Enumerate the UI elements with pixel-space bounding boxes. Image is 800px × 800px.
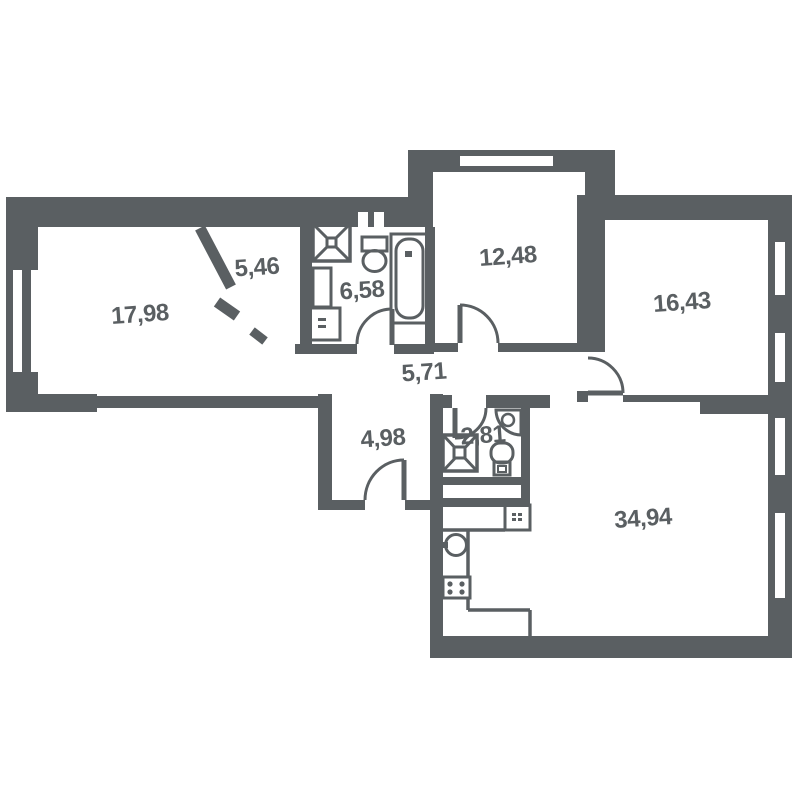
window-right-2 <box>775 333 785 382</box>
wall-segment <box>498 343 577 352</box>
wall-segment <box>437 395 452 408</box>
wall-segment <box>394 344 434 354</box>
room-area-label-living-kitchen: 34,94 <box>613 503 672 535</box>
window-line <box>6 268 13 378</box>
stove-icon <box>443 577 470 598</box>
floor-plan: 17,98 5,46 6,58 12,48 16,43 5,71 4,98 2,… <box>0 0 800 800</box>
wall-segment <box>97 396 330 408</box>
room-area-label-wc: 2,81 <box>460 420 507 451</box>
room-area-label-wardrobe: 5,46 <box>234 252 281 283</box>
duct-notch <box>358 212 368 227</box>
room-area-label-bathroom: 6,58 <box>339 275 386 306</box>
wall-segment <box>430 636 792 658</box>
door-swing-arc <box>357 309 392 344</box>
washing-machine-icon <box>310 308 340 340</box>
window-right-4 <box>775 513 785 598</box>
wall-segment <box>585 150 615 220</box>
walls <box>6 150 792 658</box>
wall-segment <box>318 394 332 510</box>
wall-segment <box>577 391 588 402</box>
wall-segment <box>437 477 530 485</box>
room-area-label-bedroom-top: 12,48 <box>478 241 537 273</box>
wall-segment <box>605 195 792 220</box>
door-swing-arc <box>460 305 498 343</box>
door-swing-arc <box>588 358 623 393</box>
shower-cabin-icon <box>313 224 350 261</box>
wall-segment <box>486 395 550 408</box>
wall-segment <box>318 500 365 510</box>
window-right-1 <box>775 242 785 295</box>
window-top-bay <box>460 156 553 166</box>
wall-segment <box>405 500 432 510</box>
room-area-label-hallway: 5,71 <box>401 357 448 388</box>
wall-segment <box>623 395 700 402</box>
bathtub-icon <box>391 234 428 323</box>
wall-segment <box>430 394 443 658</box>
entrance-door <box>365 460 404 500</box>
window-right-3 <box>775 418 785 475</box>
floor-plan-drawing <box>0 0 800 800</box>
wall-segment <box>6 394 97 412</box>
kitchen-sink-icon <box>441 535 467 556</box>
duct-notch <box>374 212 384 227</box>
wall-segment <box>295 344 357 354</box>
kitchen-counter-outline <box>443 530 530 636</box>
window-line <box>22 268 31 378</box>
bedroom-top-door <box>460 305 498 343</box>
room-area-label-entry-hall: 4,98 <box>360 423 407 454</box>
wall-segment <box>700 395 770 414</box>
wall-segment <box>252 331 265 341</box>
bathroom-door <box>357 309 392 345</box>
wall-segment <box>433 343 458 352</box>
wall-segment <box>200 228 231 287</box>
cabinet-icon <box>313 268 331 307</box>
toilet-icon <box>362 237 387 272</box>
wall-segment <box>408 150 433 227</box>
room-area-label-bedroom-left: 17,98 <box>110 299 169 331</box>
wall-segment <box>6 197 38 270</box>
room-area-label-bedroom-right: 16,43 <box>652 287 711 319</box>
bedroom-right-door <box>588 358 623 393</box>
kitchen-fixtures <box>441 505 530 636</box>
wardrobe-diagonal-door-leaf <box>217 302 237 316</box>
door-swing-arc <box>365 460 404 500</box>
wardrobe-diagonal-wall <box>200 228 265 341</box>
kitchen-appliance-icon <box>505 505 530 530</box>
